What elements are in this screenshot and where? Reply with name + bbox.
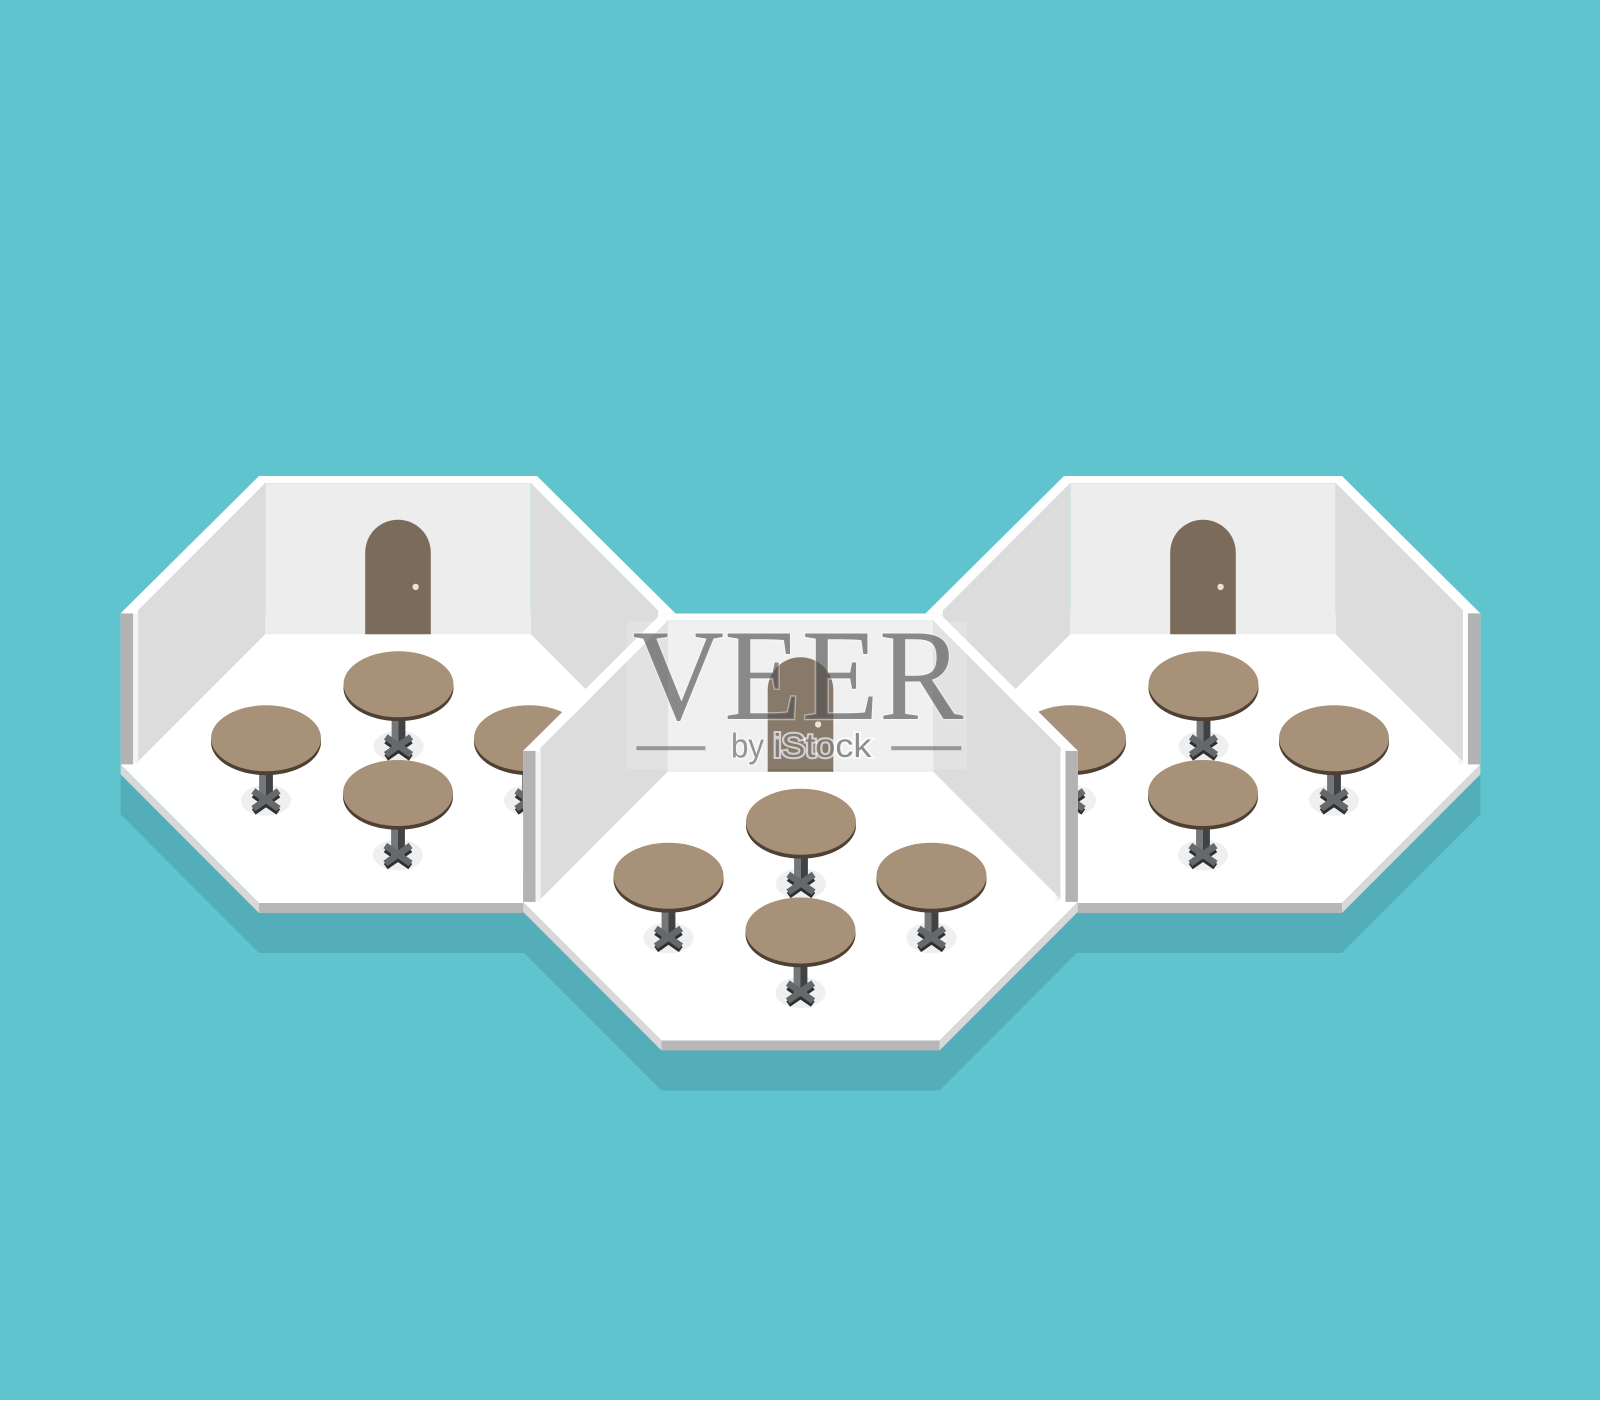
svg-text:by: by [731,728,764,766]
svg-text:iStock: iStock [773,727,872,764]
